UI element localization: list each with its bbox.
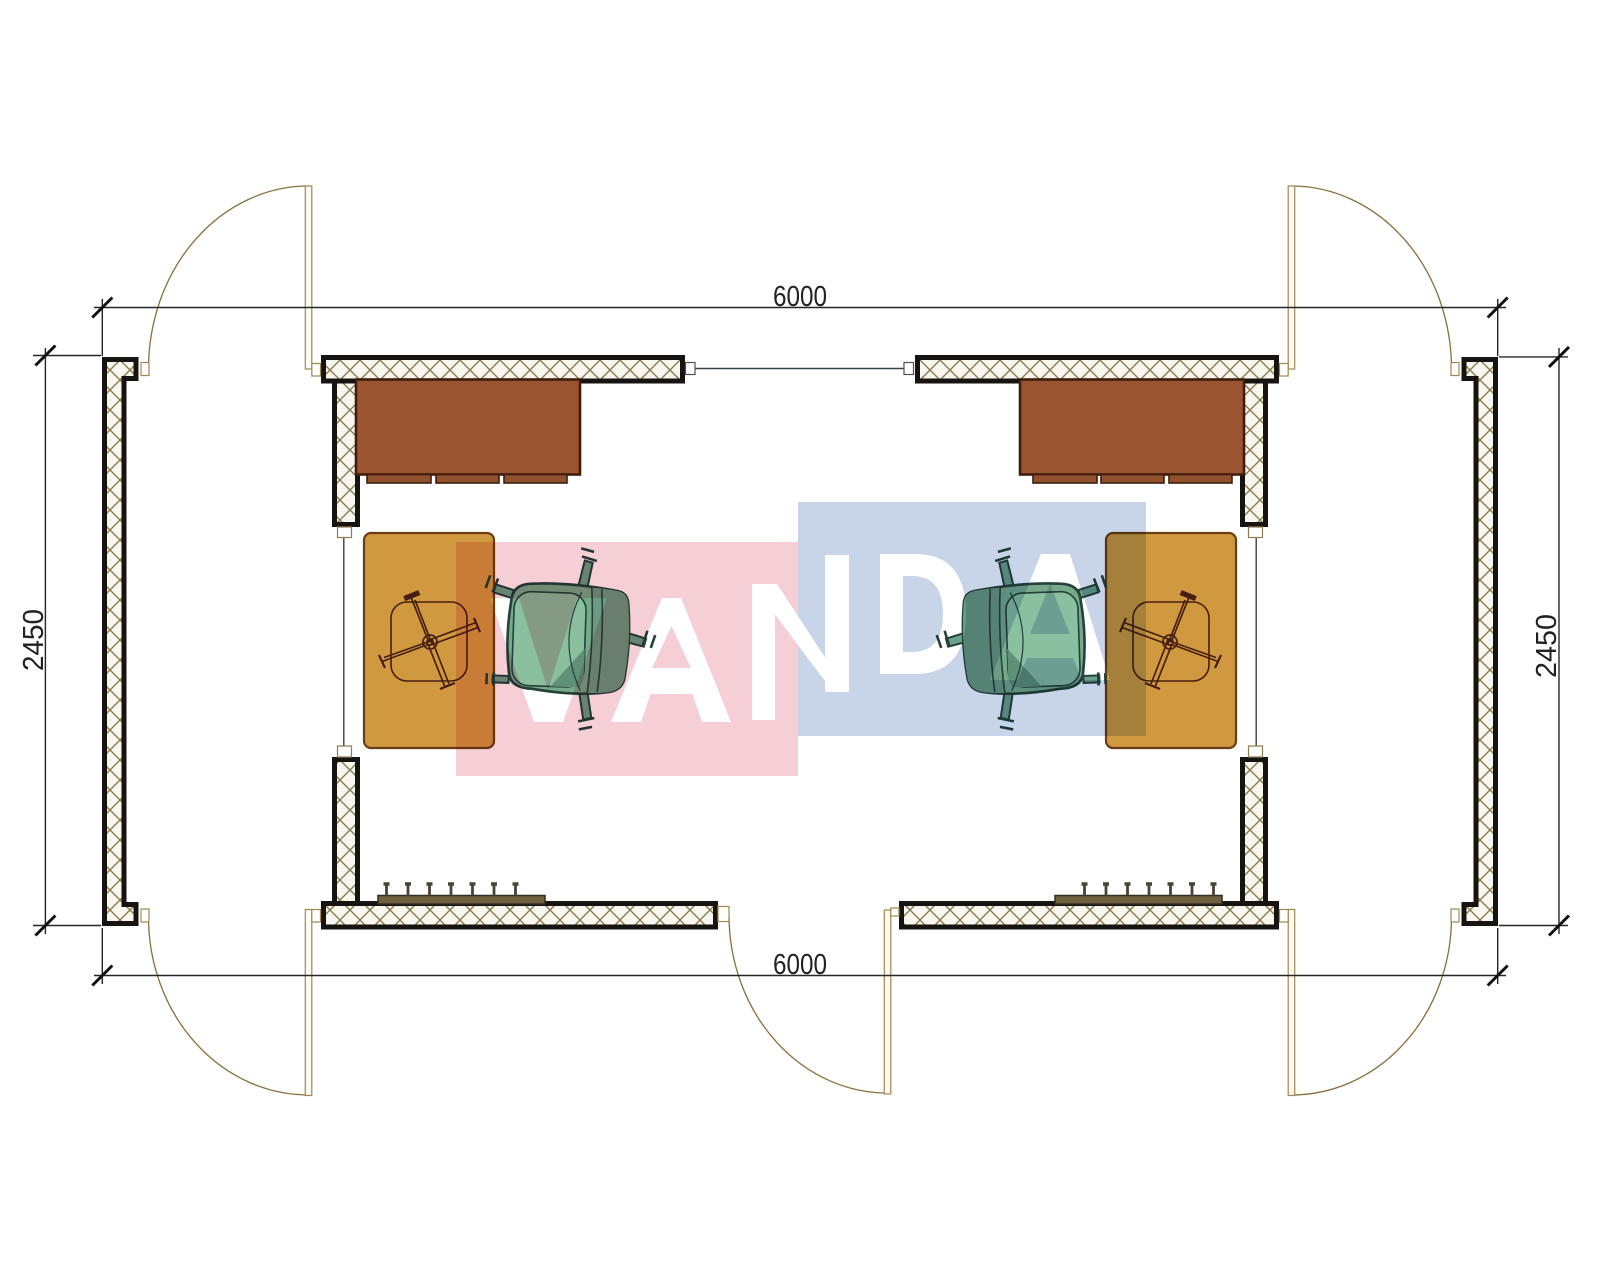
svg-text:6000: 6000 bbox=[773, 949, 827, 981]
svg-text:2450: 2450 bbox=[18, 609, 50, 671]
svg-text:2450: 2450 bbox=[1531, 614, 1563, 678]
svg-text:6000: 6000 bbox=[773, 281, 827, 313]
